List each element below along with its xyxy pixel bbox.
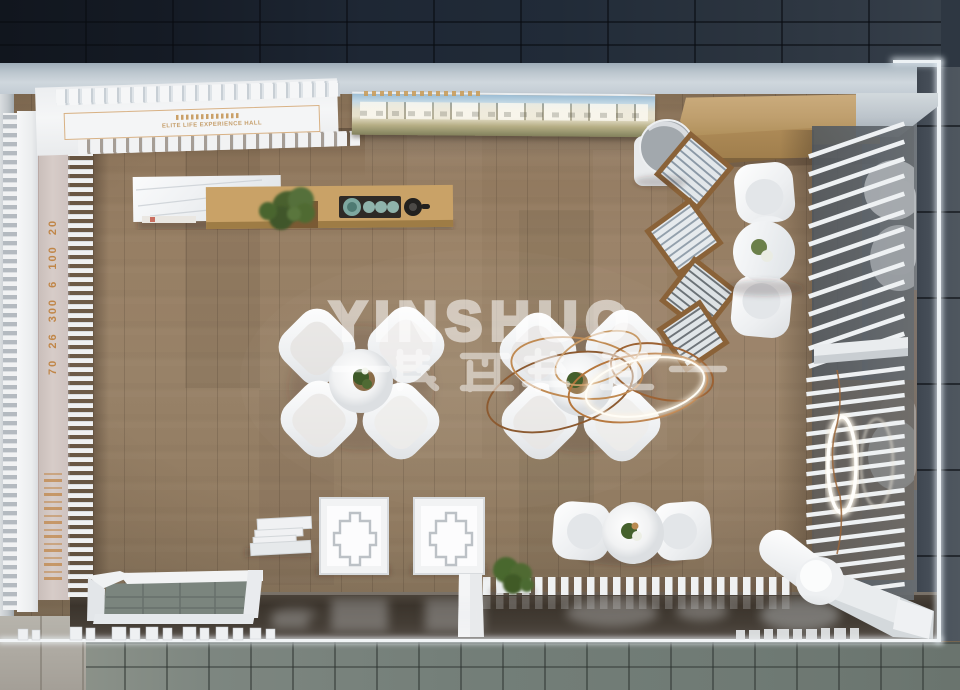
svg-text:YINSHUO: YINSHUO [330, 290, 637, 352]
